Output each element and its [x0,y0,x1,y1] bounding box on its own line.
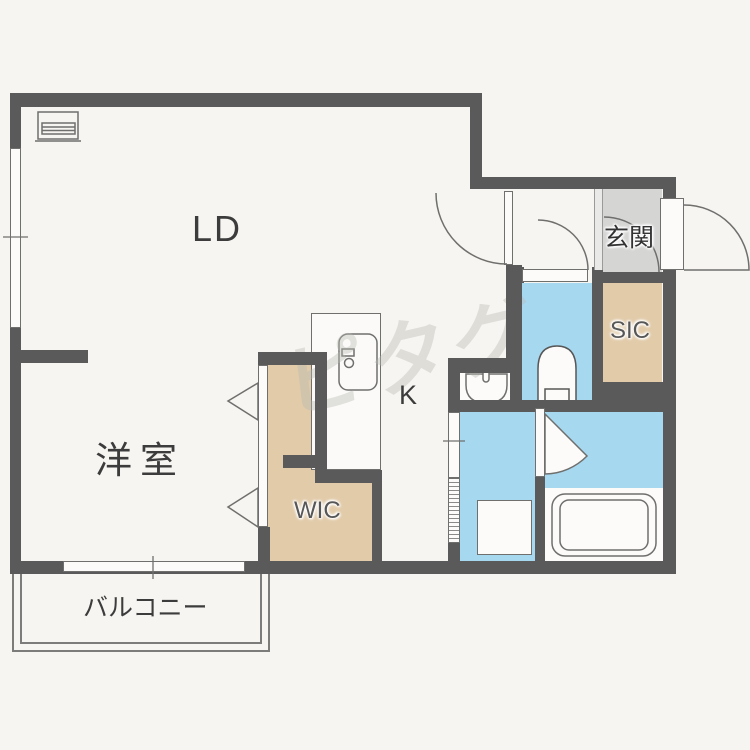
door-swing-layer [0,0,750,750]
room-label-entrance: 玄関 [604,218,654,254]
floorplan-canvas: ピタグ [0,0,750,750]
room-label-ld: LD [192,208,242,250]
room-label-kitchen: K [399,380,417,411]
bath-door-swing [545,414,587,474]
room-label-western: 洋室 [95,430,185,484]
toilet-door-arc [538,220,588,270]
entrance-door-arc [684,205,749,270]
ld-door-arc [436,193,507,264]
room-label-balcony: バルコニー [83,588,208,624]
window-center-ticks [3,237,465,579]
room-label-sic: SIC [610,317,650,345]
wic-folding-door-symbols [228,383,258,527]
room-label-wic: WIC [294,497,341,525]
